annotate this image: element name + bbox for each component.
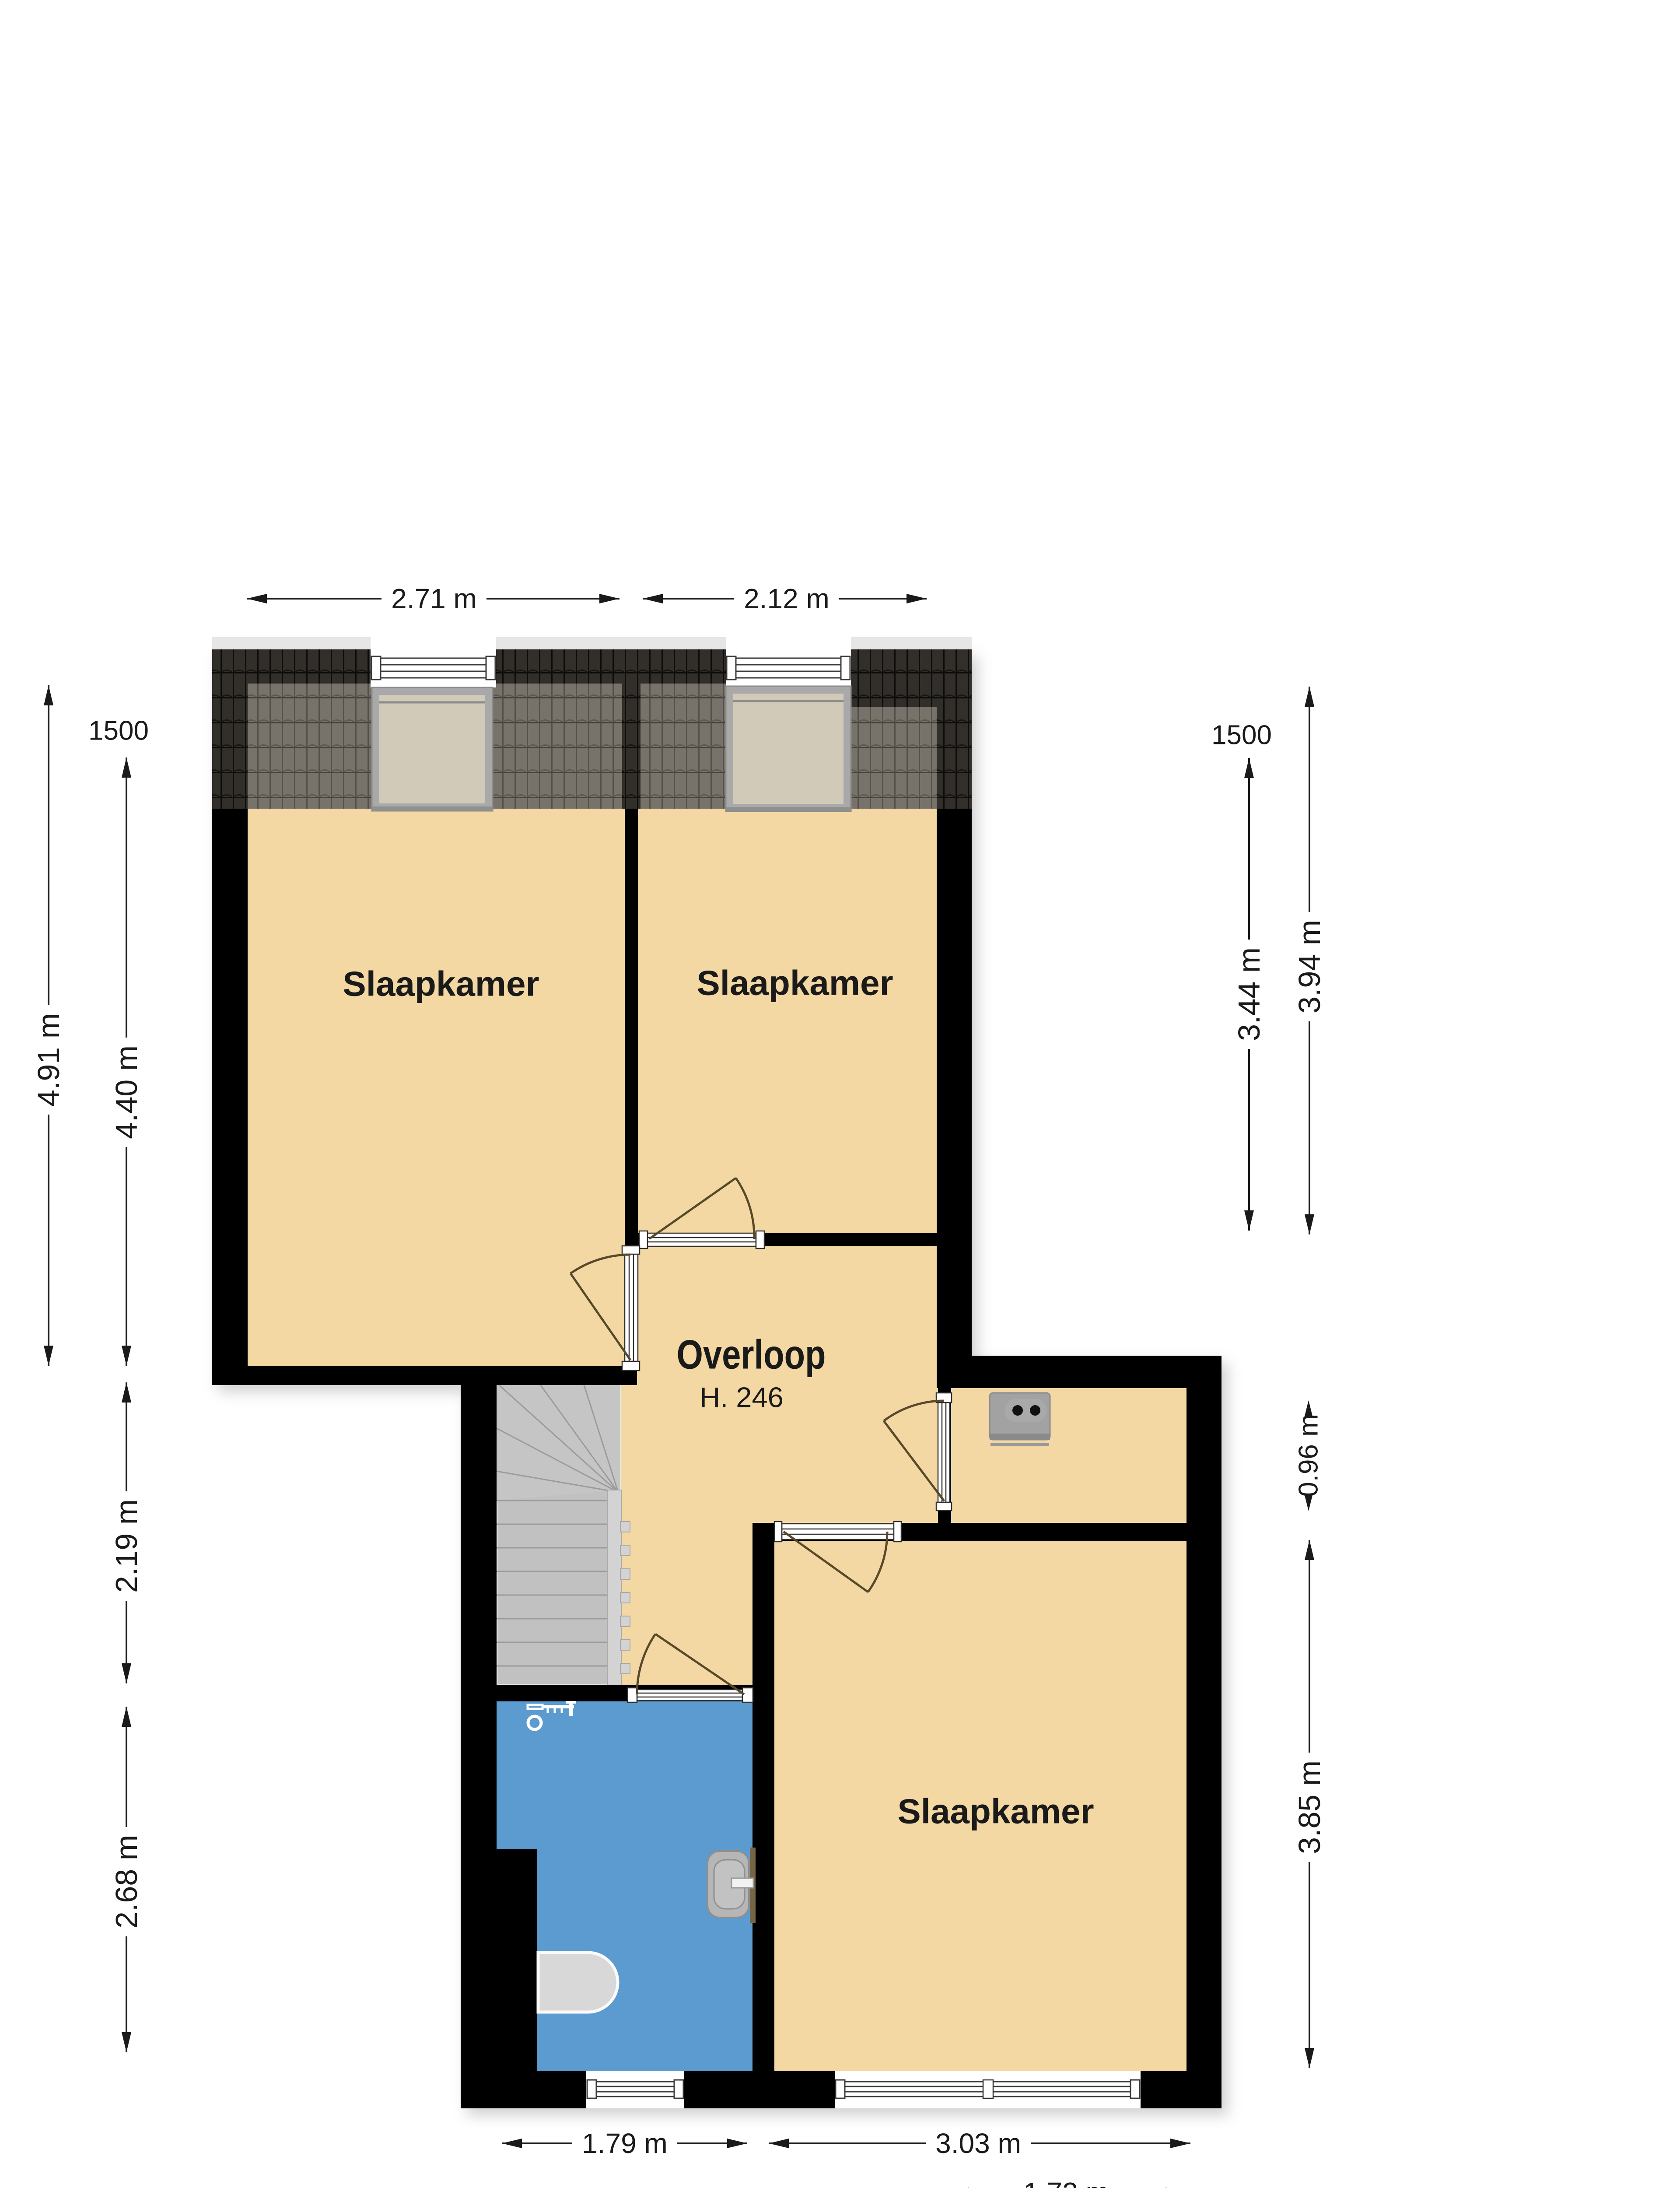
svg-text:4.91 m: 4.91 m bbox=[31, 1013, 66, 1107]
svg-text:3.94 m: 3.94 m bbox=[1292, 920, 1326, 1013]
svg-text:3.44 m: 3.44 m bbox=[1232, 947, 1266, 1041]
svg-text:H. 246: H. 246 bbox=[700, 1382, 784, 1413]
svg-text:Overloop: Overloop bbox=[677, 1332, 826, 1378]
svg-text:Slaapkamer: Slaapkamer bbox=[696, 964, 893, 1003]
svg-text:Slaapkamer: Slaapkamer bbox=[343, 964, 539, 1003]
svg-text:2.71 m: 2.71 m bbox=[391, 583, 477, 614]
svg-text:2.19 m: 2.19 m bbox=[109, 1499, 143, 1593]
svg-text:1.72 m: 1.72 m bbox=[1023, 2177, 1109, 2188]
svg-text:4.40 m: 4.40 m bbox=[109, 1045, 143, 1139]
svg-text:0.96 m: 0.96 m bbox=[1294, 1414, 1324, 1497]
svg-text:3.03 m: 3.03 m bbox=[935, 2128, 1021, 2159]
svg-text:1500: 1500 bbox=[88, 716, 149, 746]
svg-text:2.68 m: 2.68 m bbox=[109, 1835, 143, 1929]
svg-text:1.79 m: 1.79 m bbox=[582, 2128, 668, 2159]
svg-text:2.12 m: 2.12 m bbox=[744, 583, 829, 614]
svg-text:Slaapkamer: Slaapkamer bbox=[897, 1792, 1094, 1831]
svg-text:3.85 m: 3.85 m bbox=[1292, 1760, 1326, 1854]
svg-text:1500: 1500 bbox=[1211, 720, 1272, 750]
